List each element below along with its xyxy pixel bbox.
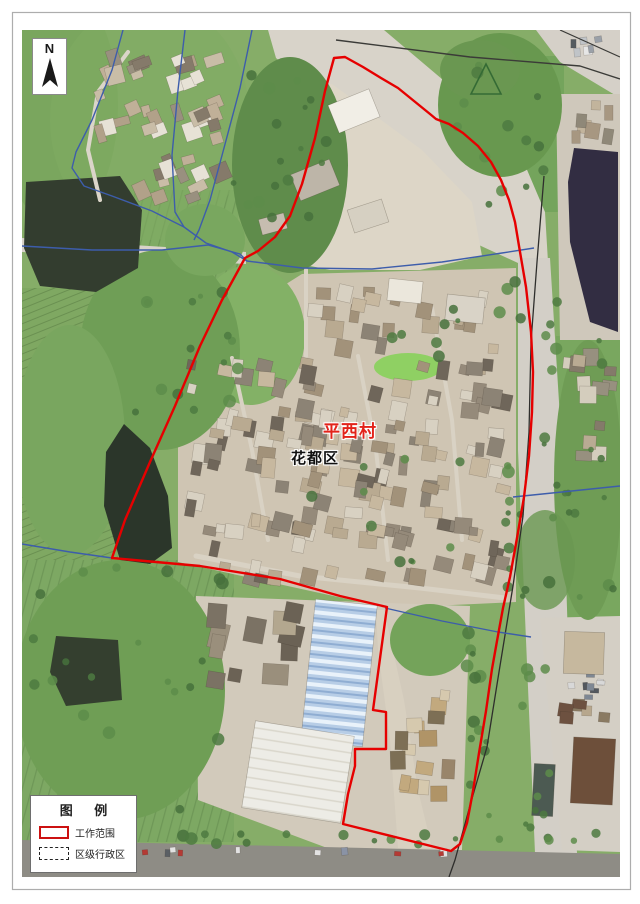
district-name-label: 花都区 [291,447,339,468]
work-scope-label: 工作范围 [75,825,115,840]
admin-district-swatch [39,847,69,860]
map-figure: N 平西村 花都区 图 例 工作范围 区级行政区 [0,0,640,904]
north-arrow: N [32,38,67,95]
legend-item-work-scope: 工作范围 [39,824,136,841]
legend-item-admin-district: 区级行政区 [39,845,136,862]
work-scope-swatch [39,826,69,839]
north-arrow-icon [38,56,62,90]
legend-title: 图 例 [31,800,136,819]
legend: 图 例 工作范围 区级行政区 [30,795,137,873]
village-name-label: 平西村 [323,417,377,442]
admin-district-label: 区级行政区 [75,846,125,861]
north-label: N [33,41,66,56]
